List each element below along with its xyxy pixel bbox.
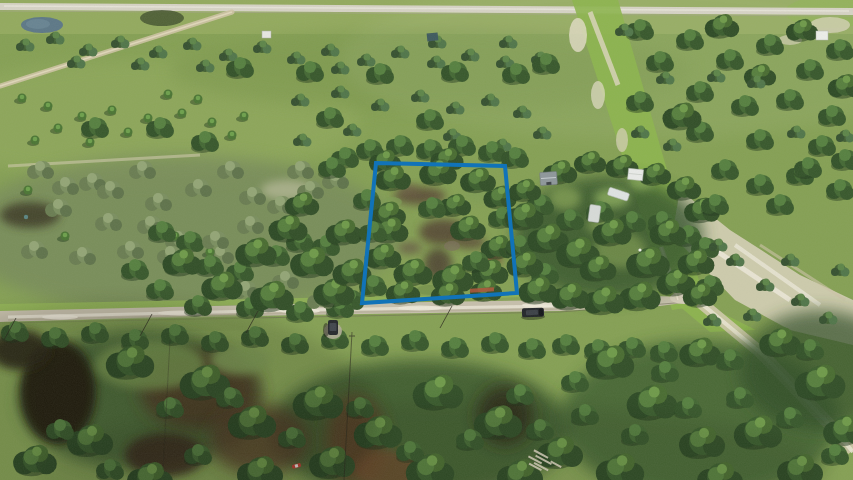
- film-grain: [0, 0, 853, 480]
- aerial-photo: [0, 0, 853, 480]
- aerial-photo-canvas: [0, 0, 853, 480]
